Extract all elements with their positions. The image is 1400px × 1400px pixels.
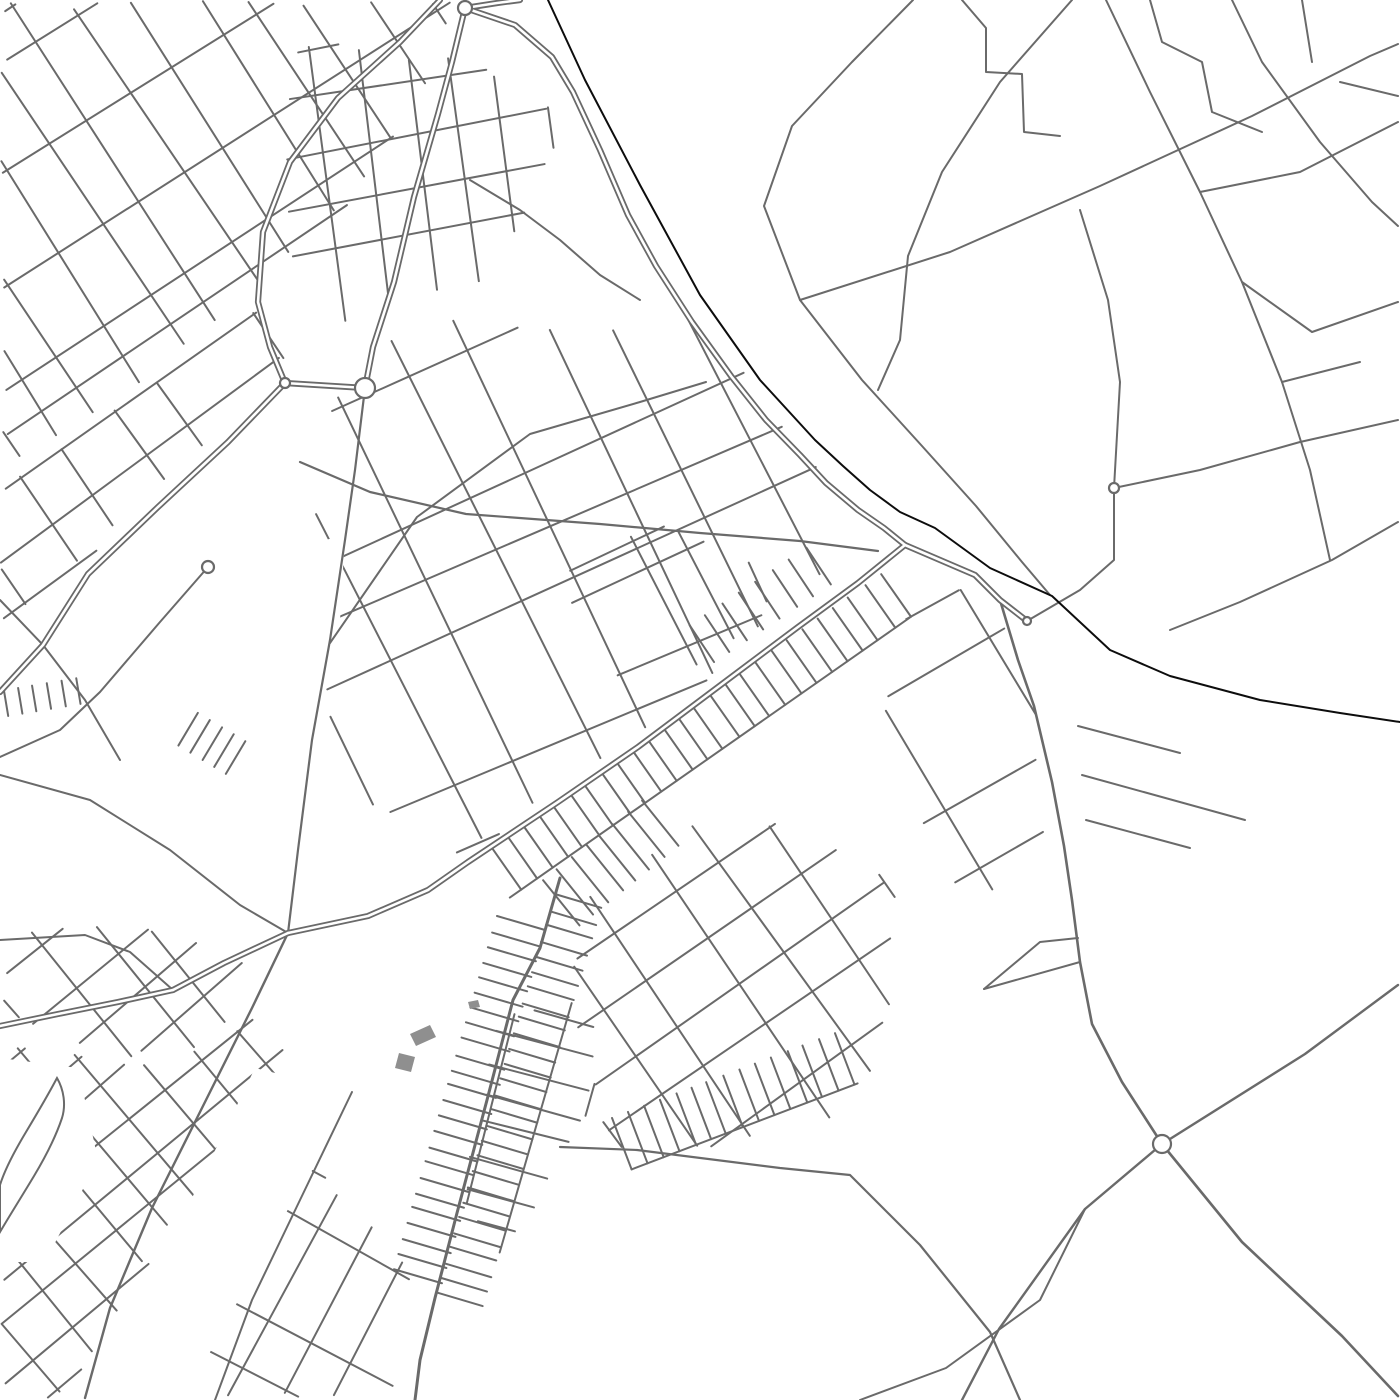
building-layer bbox=[395, 1000, 480, 1072]
building-footprint bbox=[395, 1053, 415, 1072]
roundabout-icon bbox=[1153, 1135, 1171, 1153]
street-map bbox=[0, 0, 1400, 1400]
roundabout-icon bbox=[1023, 617, 1031, 625]
building-footprint bbox=[410, 1025, 436, 1046]
map-svg bbox=[0, 0, 1400, 1400]
roundabout-icon bbox=[280, 378, 290, 388]
roundabout-icon bbox=[1109, 483, 1119, 493]
roundabout-icon bbox=[355, 378, 375, 398]
roundabout-icon bbox=[458, 1, 472, 15]
building-footprint bbox=[468, 1000, 480, 1009]
roundabout-icon bbox=[202, 561, 214, 573]
map-canvas bbox=[0, 0, 1400, 1400]
